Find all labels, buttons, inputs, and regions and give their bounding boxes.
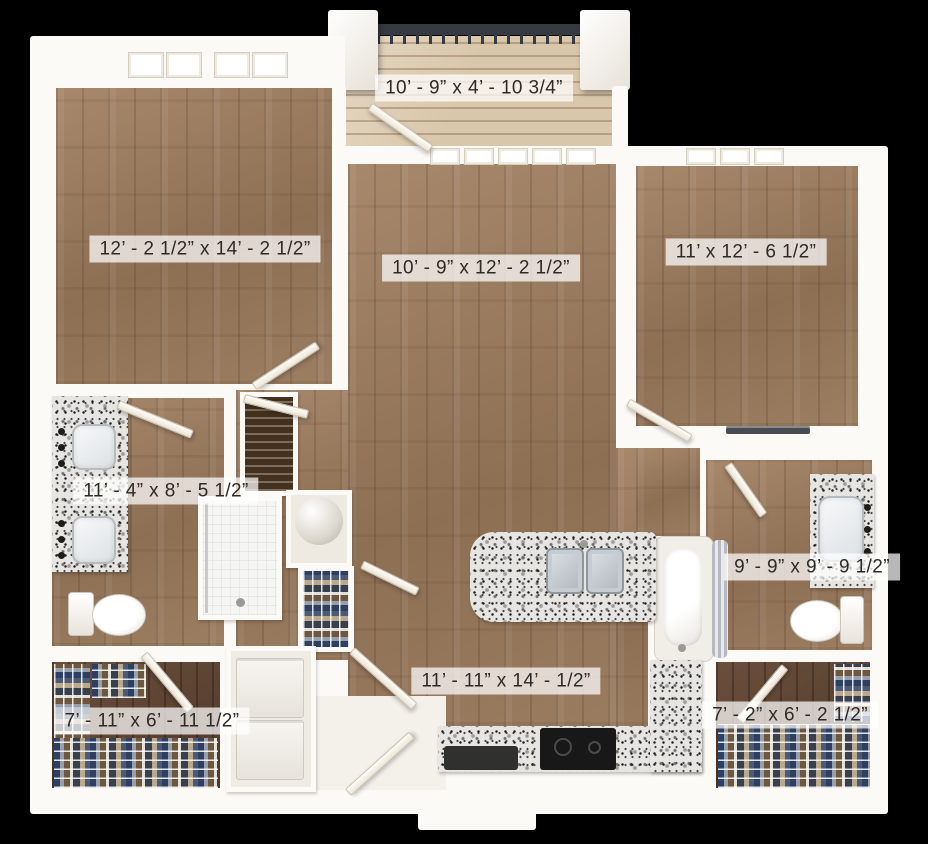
floor-plan: 10’ - 9” x 4’ - 10 3/4” 12’ - 2 1/2” x 1… — [0, 0, 928, 844]
shower-glass — [205, 503, 208, 613]
bathroom2-dimensions-label: 9’ - 9” x 9’ - 9 1/2” — [724, 554, 900, 581]
closet1-dimensions-label: 7’ - 11” x 6’ - 11 1/2” — [55, 708, 250, 735]
living-window — [464, 148, 494, 165]
bedroom1-dimensions-label: 12’ - 2 1/2” x 14’ - 2 1/2” — [89, 236, 320, 263]
island-sink — [586, 548, 624, 594]
living-window — [532, 148, 562, 165]
bathroom1-sink — [72, 424, 116, 470]
living-window — [498, 148, 528, 165]
bedroom2-window — [720, 148, 750, 165]
faucet-handle — [58, 520, 65, 527]
stove-burner — [588, 741, 601, 754]
balcony-pillar-right — [580, 10, 630, 90]
bedroom2-floor — [636, 166, 858, 426]
closet2-dimensions-label: 7’ - 2” x 6’ - 2 1/2” — [702, 702, 878, 729]
faucet-handle — [58, 460, 65, 467]
bedroom2-sliding-door-track — [726, 426, 810, 434]
bedroom1-window — [128, 52, 164, 78]
kitchen-counter-right — [650, 660, 702, 772]
stove — [540, 728, 616, 770]
faucet-handle — [58, 428, 65, 435]
toilet-tank — [68, 592, 94, 636]
toilet-tank — [840, 596, 864, 644]
toilet-bowl — [790, 600, 844, 642]
stove-burner — [554, 738, 572, 756]
bedroom2-window — [686, 148, 716, 165]
living-window — [430, 148, 460, 165]
hall-closet — [298, 566, 354, 652]
bedroom2-window — [754, 148, 784, 165]
faucet-handle — [58, 552, 65, 559]
entry-floor — [316, 696, 446, 790]
bedroom2-hall-floor — [636, 448, 700, 536]
kitchen-dimensions-label: 11’ - 11” x 14’ - 1/2” — [411, 668, 600, 695]
closet2-clothes-rack — [718, 724, 870, 788]
faucet-handle — [58, 536, 65, 543]
island-faucet — [580, 540, 588, 548]
balcony-dimensions-label: 10’ - 9” x 4’ - 10 3/4” — [375, 75, 573, 102]
shower-drain — [236, 598, 245, 607]
bedroom2-dimensions-label: 11’ x 12’ - 6 1/2” — [666, 239, 827, 266]
island-sink — [546, 548, 584, 594]
faucet-handle — [864, 526, 871, 533]
bathroom1-dimensions-label: 11’ - 4” x 8’ - 5 1/2” — [73, 478, 258, 505]
bedroom1-window — [214, 52, 250, 78]
tub-faucet — [678, 644, 686, 652]
bathtub-basin — [664, 548, 702, 646]
bathroom1-sink — [72, 516, 116, 564]
bathroom2-sink — [818, 496, 864, 562]
closet1-clothes-rack — [54, 738, 218, 788]
balcony-wall-right — [612, 86, 628, 148]
decor-vase — [295, 497, 343, 545]
faucet-handle — [58, 444, 65, 451]
toilet-bowl — [92, 594, 146, 636]
bedroom1-window — [252, 52, 288, 78]
closet1-clothes-rack — [92, 664, 146, 698]
faucet-handle — [864, 504, 871, 511]
dishwasher — [444, 746, 518, 770]
living-window — [566, 148, 596, 165]
living-dimensions-label: 10’ - 9” x 12’ - 2 1/2” — [382, 255, 580, 282]
entry-step — [418, 800, 536, 830]
bedroom1-window — [166, 52, 202, 78]
